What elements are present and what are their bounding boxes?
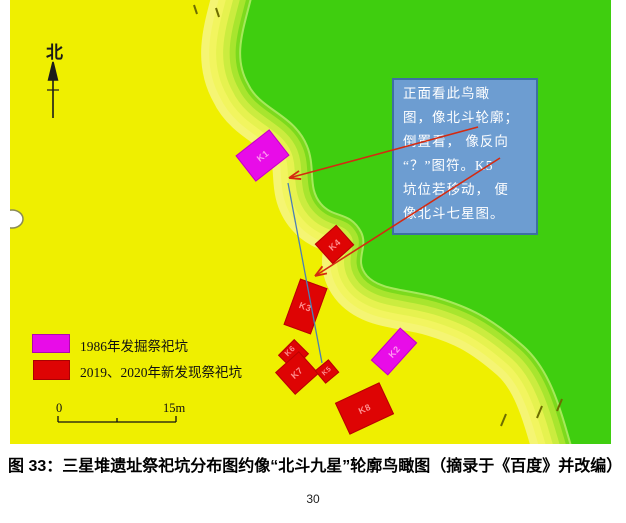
pit-k3-label: K3 (298, 300, 313, 314)
page-number: 30 (0, 492, 626, 506)
legend-label-2019-2020: 2019、2020年新发现祭祀坑 (80, 361, 242, 381)
document-page: 北 K1 K4 K3 K6 K7 K5 K2 K8 1986年发掘祭祀坑 201… (0, 0, 626, 523)
annotation-line-3: 倒置看， 像反向 (403, 130, 534, 154)
north-label: 北 (46, 38, 63, 63)
annotation-line-1: 正面看此鸟瞰 (403, 82, 534, 106)
legend-swatch-1986 (32, 334, 70, 353)
pit-k7-label: K7 (289, 365, 305, 381)
pit-k1-label: K1 (254, 148, 270, 164)
scale-bar (58, 416, 176, 422)
legend-swatch-2019-2020 (33, 360, 70, 380)
figure-caption: 图 33：三星堆遗址祭祀坑分布图约像“北斗九星”轮廓鸟瞰图（摘录于《百度》并改编… (8, 452, 620, 476)
scale-start-label: 0 (56, 401, 62, 416)
annotation-line-2: 图，像北斗轮廓； (403, 106, 534, 130)
pit-k2-label: K2 (386, 344, 402, 360)
pit-k5-label: K5 (321, 366, 333, 378)
legend-label-1986: 1986年发掘祭祀坑 (80, 335, 188, 355)
annotation-box: 正面看此鸟瞰 图，像北斗轮廓； 倒置看， 像反向 “？”图符。K5 坑位若移动，… (392, 78, 538, 235)
pit-k4-label: K4 (326, 237, 342, 253)
annotation-line-6: 像北斗七星图。 (403, 202, 534, 226)
north-arrow-icon (47, 62, 59, 118)
site-map: 北 K1 K4 K3 K6 K7 K5 K2 K8 1986年发掘祭祀坑 201… (10, 0, 611, 444)
scale-end-label: 15m (163, 401, 185, 416)
annotation-line-5: 坑位若移动， 便 (403, 178, 534, 202)
edge-notch (10, 210, 23, 228)
pit-k8-label: K8 (357, 401, 373, 415)
annotation-line-4: “？”图符。K5 (403, 154, 534, 178)
